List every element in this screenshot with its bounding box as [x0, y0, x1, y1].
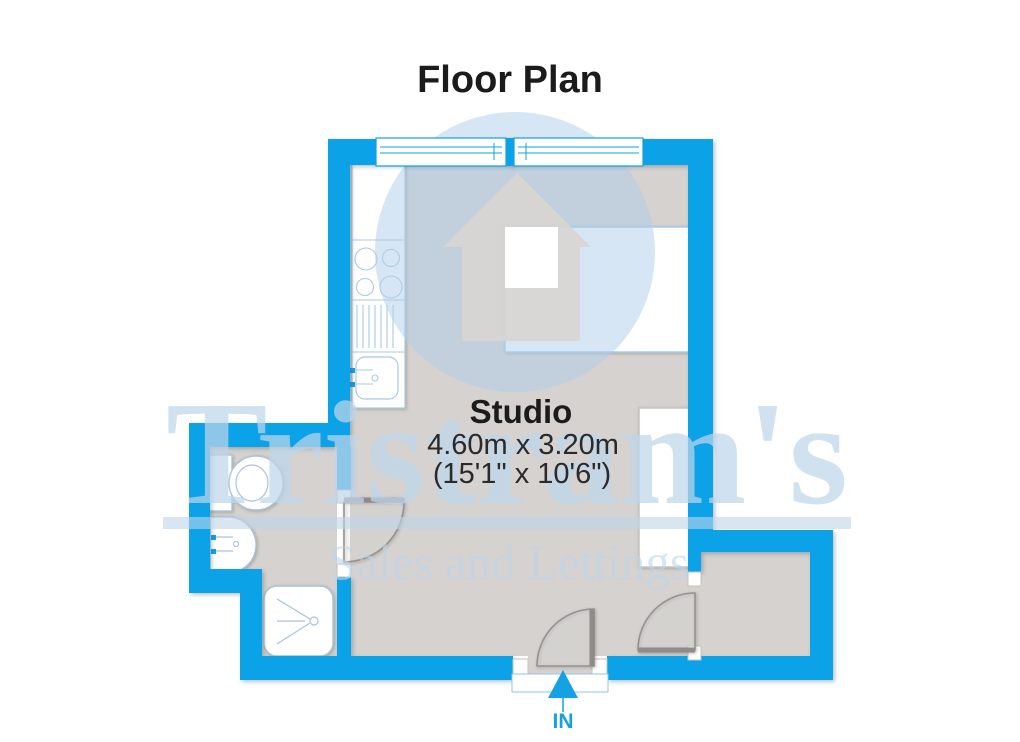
room-dimensions-imperial: (15'1" x 10'6")	[433, 458, 611, 490]
window-icon	[376, 138, 506, 166]
shower-icon	[264, 586, 333, 656]
window-icon	[514, 138, 643, 166]
watermark-underline	[163, 517, 851, 529]
watermark-tagline: Sales and Lettings	[329, 534, 689, 590]
floor-plan-canvas: Floor Plan	[0, 0, 1020, 742]
logo-house-door	[505, 227, 558, 288]
room-dimensions-metric: 4.60m x 3.20m	[427, 429, 619, 461]
room-name: Studio	[470, 393, 573, 430]
entrance-label: IN	[553, 710, 574, 733]
page-title: Floor Plan	[417, 59, 603, 101]
